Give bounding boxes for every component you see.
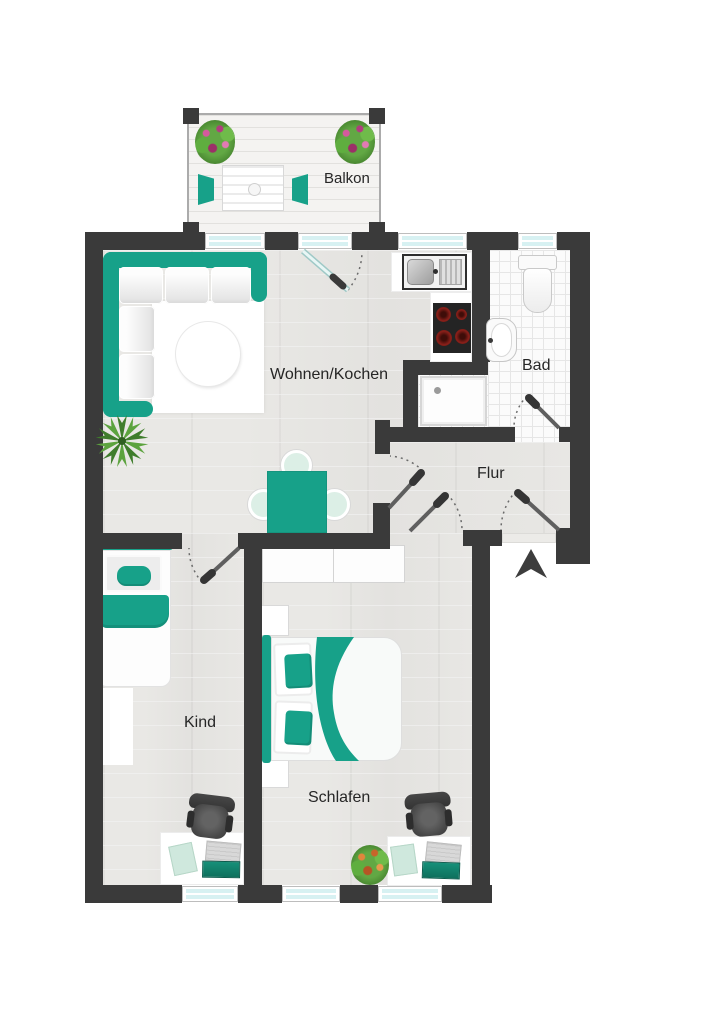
kitchen-window	[398, 233, 467, 249]
wall-segment	[85, 885, 182, 903]
shower-tray	[420, 376, 487, 426]
room-label-schlafen: Schlafen	[308, 789, 370, 807]
wall-segment	[388, 427, 515, 442]
office-chair	[402, 791, 456, 845]
window-glass	[402, 236, 463, 246]
balcony-chair	[292, 174, 308, 205]
bed-runner-blanket	[262, 635, 403, 763]
entrance-threshold	[502, 533, 556, 543]
wall-segment	[103, 533, 182, 549]
chair-armrest	[444, 809, 452, 827]
sofa-armrest-right	[251, 252, 267, 302]
wall-segment	[373, 503, 390, 549]
table-center-detail	[248, 183, 261, 196]
sink-basin	[407, 259, 434, 285]
sink-drainer	[439, 259, 462, 285]
kind-bed	[95, 541, 173, 689]
bed-pillow-roll	[117, 566, 151, 586]
flower-bush	[195, 120, 235, 164]
wall-segment	[559, 427, 570, 442]
laptop-screen	[202, 861, 240, 879]
wall-segment	[556, 528, 590, 564]
balcony-table	[222, 165, 284, 211]
wardrobe	[262, 545, 405, 583]
room-label-kind: Kind	[184, 714, 216, 732]
wardrobe-divider	[333, 546, 334, 582]
flower-bush	[335, 120, 375, 164]
balcony-area: Balkon	[183, 108, 385, 238]
balcony-door-sill	[298, 233, 352, 249]
kitchen-sink	[402, 254, 467, 290]
stove	[433, 303, 471, 353]
window	[205, 233, 265, 249]
wall-segment	[85, 232, 103, 903]
basin-bowl	[491, 323, 512, 357]
basin-faucet	[488, 338, 493, 343]
chair-armrest	[225, 815, 234, 833]
stove-burner	[436, 330, 452, 346]
chair-armrest	[405, 812, 413, 830]
window-glass	[302, 236, 348, 246]
wall-segment	[570, 232, 590, 528]
dining-table	[267, 471, 327, 533]
bath-window	[518, 233, 557, 249]
schlafen-window	[282, 886, 340, 902]
sofa-cushion	[119, 354, 155, 399]
floorplan-canvas: Balkon	[0, 0, 724, 1024]
washbasin	[486, 318, 517, 362]
window-glass	[209, 236, 261, 246]
sofa-cushion	[119, 267, 163, 304]
office-chair	[182, 792, 238, 848]
balcony-post	[183, 108, 199, 124]
balcony-post	[369, 108, 385, 124]
wall-segment	[467, 232, 518, 250]
window-glass	[186, 889, 234, 899]
sofa-cushion	[211, 267, 251, 304]
paper-sheet	[168, 842, 198, 876]
window-glass	[286, 889, 336, 899]
bed-blanket	[99, 595, 169, 628]
wall-segment	[340, 885, 378, 903]
window-glass	[522, 236, 553, 246]
wall-segment	[238, 885, 282, 903]
double-bed	[262, 635, 403, 763]
sofa-cushion	[165, 267, 209, 304]
schlafen-desk	[387, 836, 471, 886]
room-label-bad: Bad	[522, 357, 550, 375]
wall-segment	[352, 232, 398, 250]
stove-burner	[436, 307, 451, 322]
sink-faucet	[433, 269, 438, 274]
sofa-armrest-bottom	[103, 401, 153, 417]
balcony-chair	[198, 174, 214, 205]
window-glass	[382, 889, 438, 899]
shower-drain	[434, 387, 441, 394]
stove-burner	[455, 329, 470, 344]
desk-plant	[351, 845, 389, 885]
room-label-flur: Flur	[477, 465, 505, 483]
north-arrow-icon	[515, 549, 547, 578]
room-label-wohnen-kochen: Wohnen/Kochen	[270, 366, 388, 384]
wall-segment	[85, 232, 205, 250]
wall-segment	[238, 533, 375, 549]
wall-segment	[265, 232, 298, 250]
wall-segment	[442, 885, 492, 903]
schlafen-window	[378, 886, 442, 902]
paper-sheet	[390, 843, 418, 876]
kind-window	[182, 886, 238, 902]
chair-seat	[410, 801, 449, 837]
coffee-table	[176, 322, 240, 386]
chair-seat	[190, 803, 230, 840]
sofa-back-left	[103, 252, 119, 417]
toilet	[518, 255, 557, 313]
sofa-back-top	[103, 252, 267, 268]
toilet-bowl	[523, 268, 552, 313]
sofa-cushion	[119, 306, 155, 352]
room-label-balkon: Balkon	[324, 170, 370, 187]
laptop-screen	[422, 861, 461, 879]
laptop	[423, 841, 462, 880]
wall-segment	[472, 546, 490, 885]
wall-segment	[244, 533, 262, 885]
stove-burner	[456, 309, 467, 320]
wall-segment	[463, 530, 502, 546]
